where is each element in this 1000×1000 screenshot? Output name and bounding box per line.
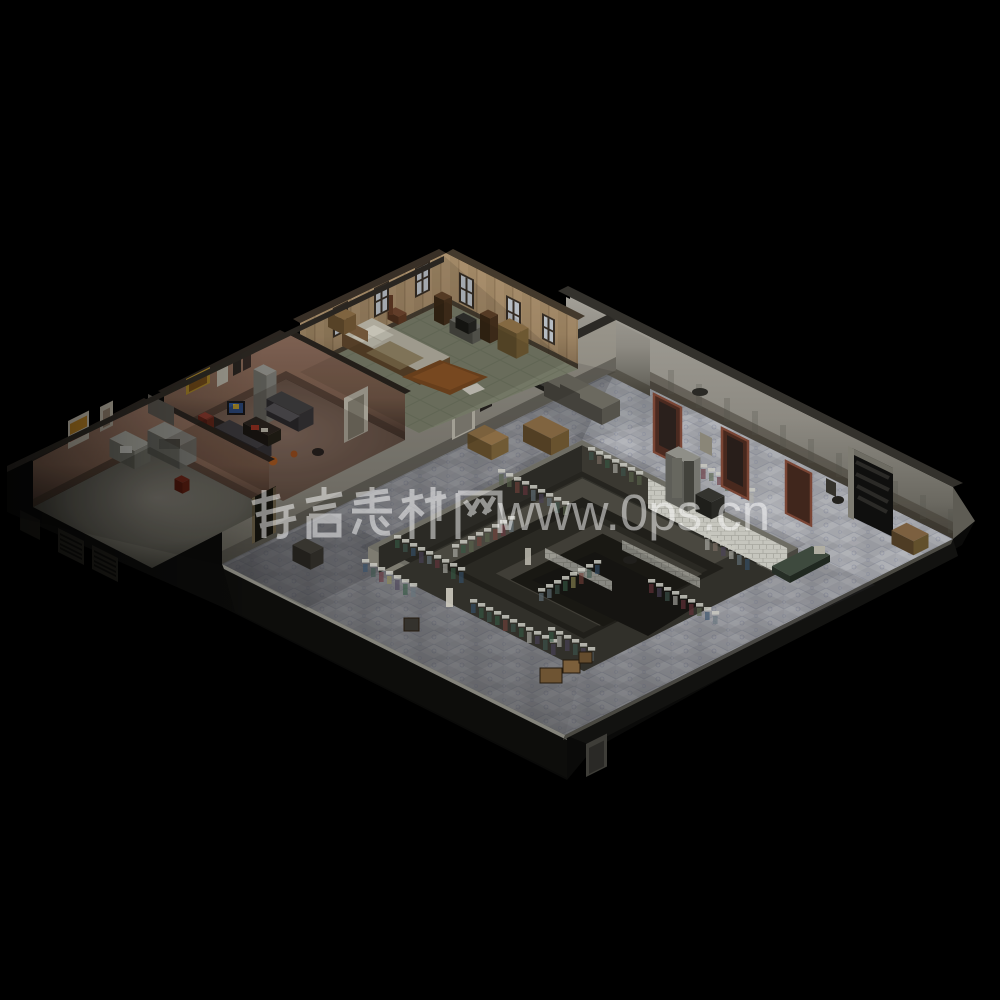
svg-text:www.0ps.cn: www.0ps.cn <box>497 484 770 541</box>
